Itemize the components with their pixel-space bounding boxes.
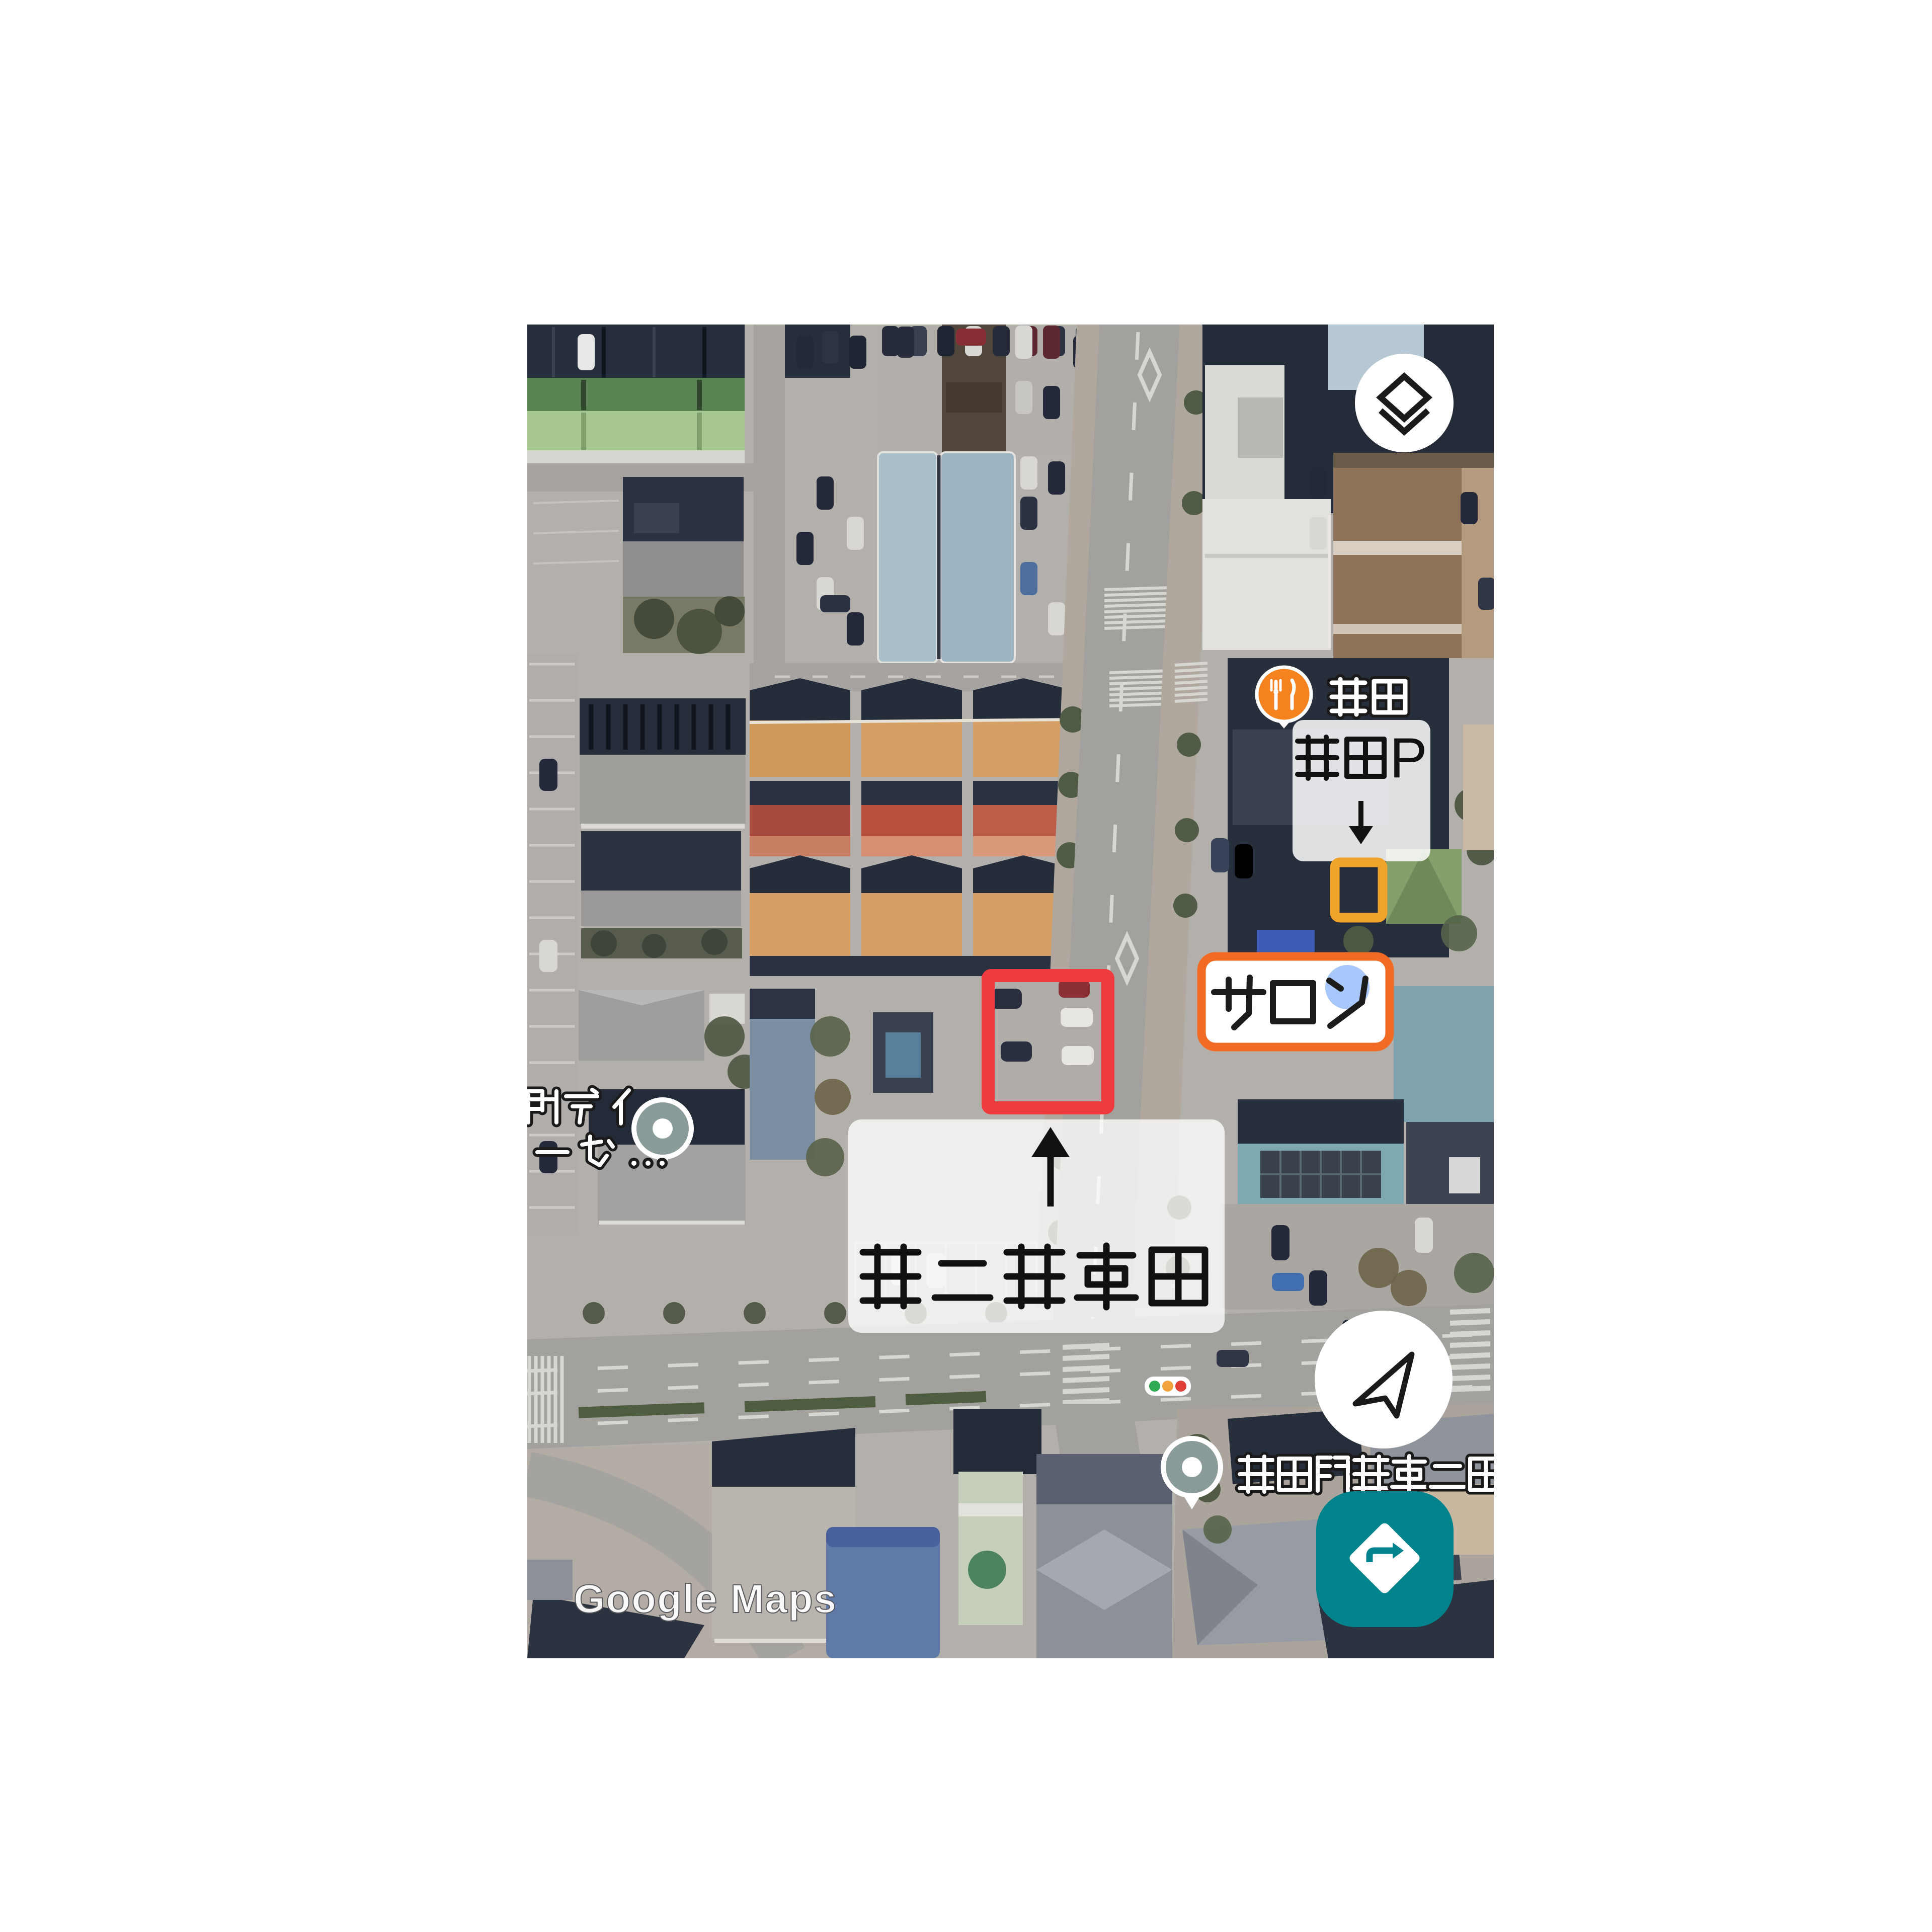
svg-text:Google Maps: Google Maps <box>574 1576 837 1621</box>
svg-text:P: P <box>1390 727 1427 789</box>
